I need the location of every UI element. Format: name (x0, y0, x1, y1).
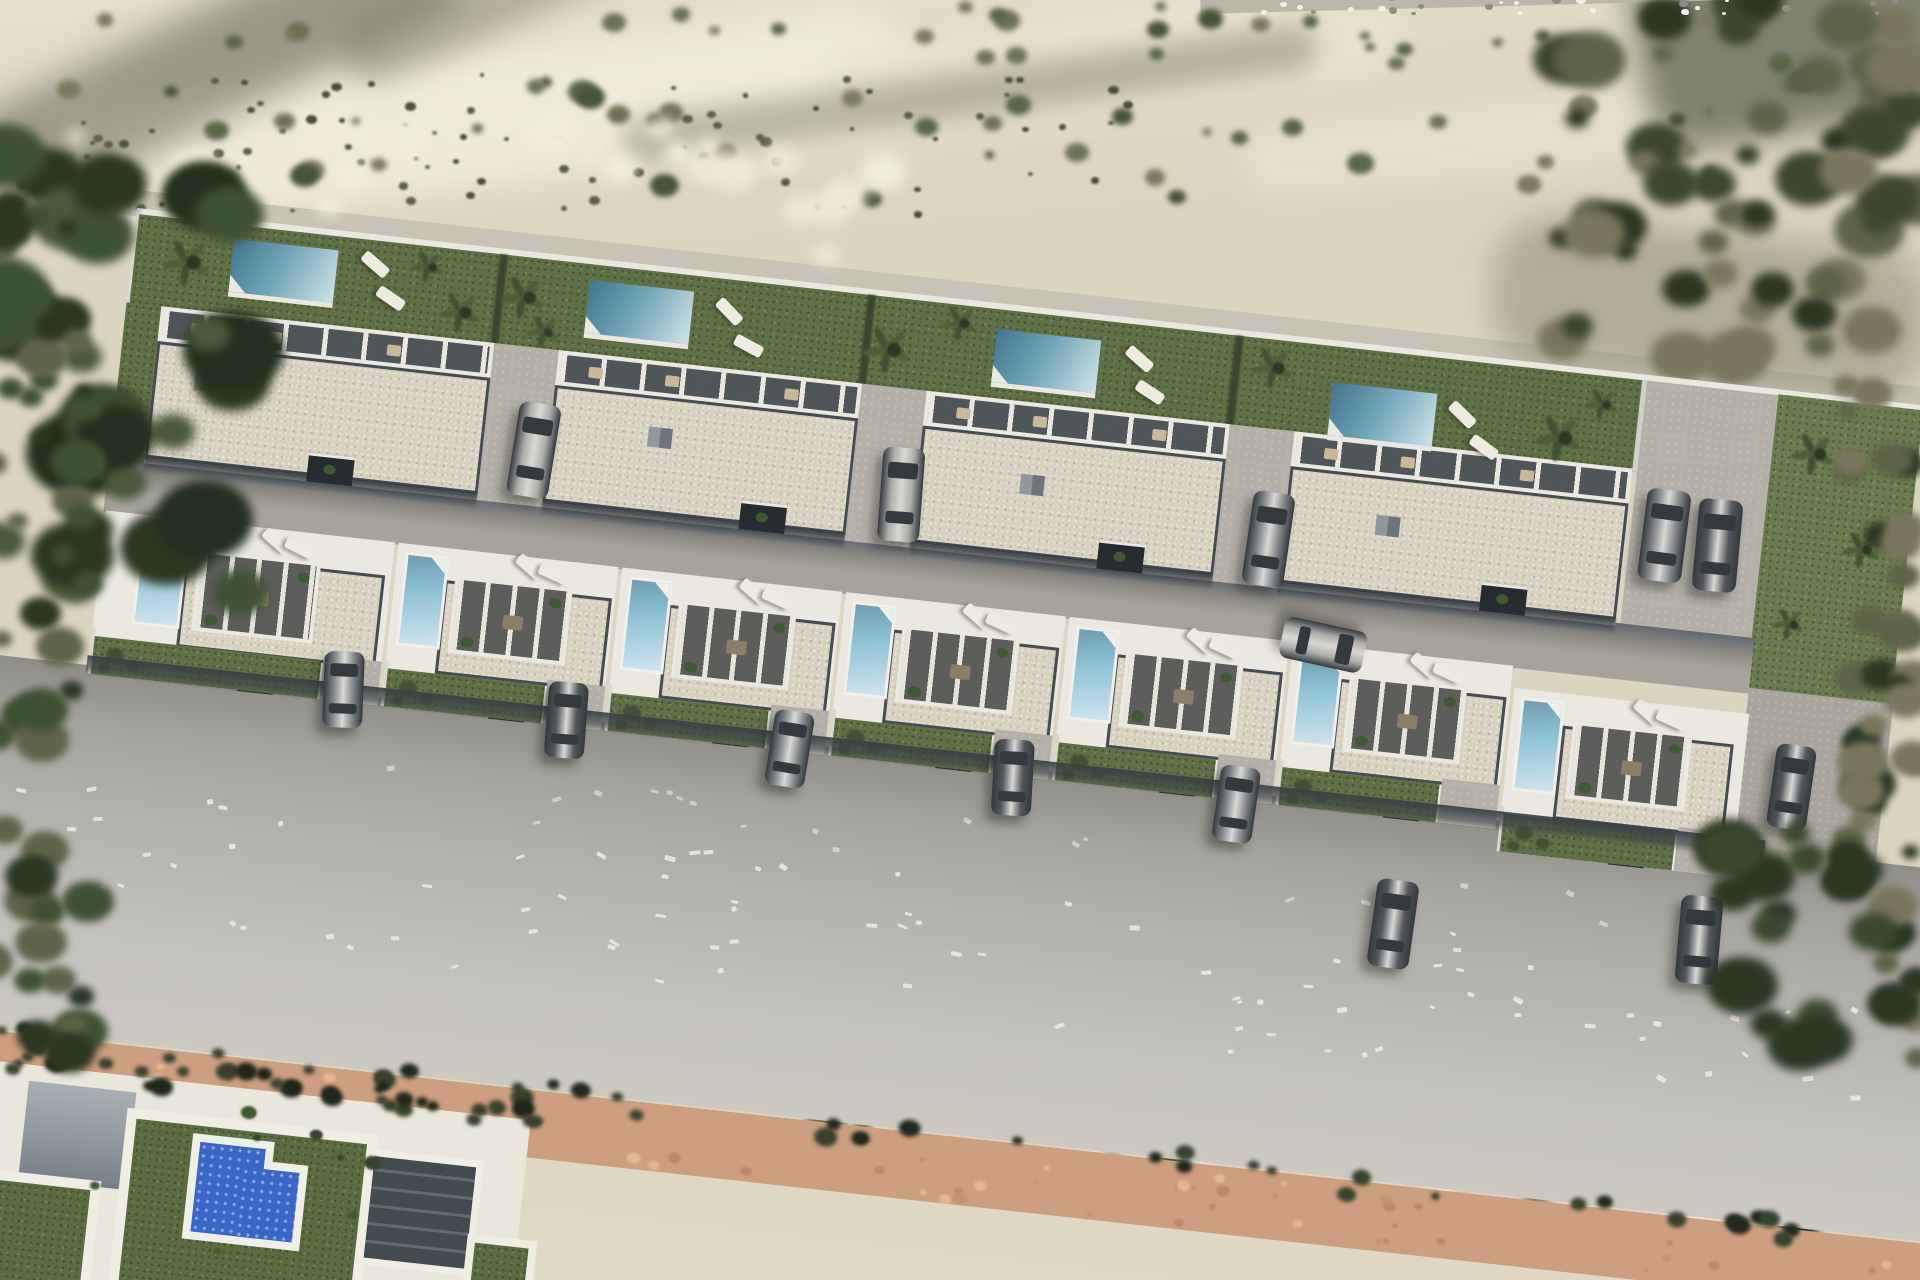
left-edge-trees-blob (0, 816, 23, 844)
right-edge-scrub-blob (1867, 982, 1920, 1026)
left-edge-trees-blob (44, 1032, 95, 1073)
left-edge-trees-blob (52, 546, 74, 564)
roadside-tree-right-blob (1788, 843, 1826, 874)
left-edge-trees-blob (16, 336, 69, 378)
right-edge-scrub-blob (1890, 741, 1920, 776)
left-edge-trees-blob (68, 986, 94, 1007)
right-edge-scrub-blob (1838, 405, 1855, 419)
right-edge-scrub-blob (1880, 526, 1920, 560)
left-edge-trees-blob (14, 688, 68, 731)
left-edge-trees-blob (73, 572, 103, 596)
roadside-tree-right-blob (1782, 822, 1810, 845)
left-edge-trees-blob (0, 452, 7, 476)
roadside-tree-right-blob (1840, 853, 1883, 887)
right-edge-scrub-blob (1884, 683, 1920, 718)
foreground-vegetation-layer (0, 0, 1920, 1280)
topleft-trees-blob (70, 153, 147, 214)
right-edge-scrub-blob (1905, 1048, 1920, 1068)
left-edge-trees-blob (0, 378, 24, 399)
right-edge-scrub-blob (1834, 448, 1867, 474)
roadside-tree-right-blob (1796, 1017, 1853, 1063)
left-edge-trees-blob (5, 855, 58, 898)
left-edge-trees-blob (62, 881, 114, 923)
topleft-trees-blob (188, 317, 230, 351)
topleft-trees-blob (0, 523, 25, 559)
roadside-tree-right-blob (1751, 912, 1790, 943)
roadside-tree-right-blob (1710, 876, 1755, 912)
topleft-trees-blob (195, 187, 264, 242)
left-edge-trees-blob (57, 221, 75, 236)
left-edge-trees-blob (36, 627, 84, 665)
right-edge-scrub-blob (1860, 714, 1887, 735)
topleft-trees-blob (62, 206, 134, 264)
left-edge-trees-blob (20, 597, 60, 629)
left-edge-trees-blob (65, 504, 96, 529)
topleft-trees-blob (212, 570, 268, 615)
topleft-trees-blob (104, 465, 147, 499)
right-edge-scrub-blob (1902, 845, 1920, 859)
left-edge-trees-blob (15, 922, 67, 963)
aerial-villa-development-scene (0, 0, 1920, 1280)
left-edge-trees-blob (14, 968, 46, 993)
roadside-tree-right-blob (1849, 912, 1897, 951)
right-edge-scrub-blob (1873, 953, 1900, 974)
topleft-trees-blob (151, 414, 195, 449)
right-edge-scrub-blob (1833, 375, 1859, 396)
right-edge-scrub-blob (1887, 563, 1920, 589)
left-edge-trees-blob (0, 943, 13, 980)
left-edge-trees-blob (69, 394, 103, 421)
right-edge-scrub-blob (1871, 443, 1913, 477)
left-edge-trees-blob (7, 513, 27, 529)
left-edge-trees-blob (0, 631, 12, 648)
right-edge-scrub-blob (1851, 606, 1888, 636)
topleft-trees-blob (155, 480, 253, 559)
roadside-tree-right-blob (1700, 825, 1763, 875)
roadside-tree-right-blob (1719, 966, 1747, 989)
